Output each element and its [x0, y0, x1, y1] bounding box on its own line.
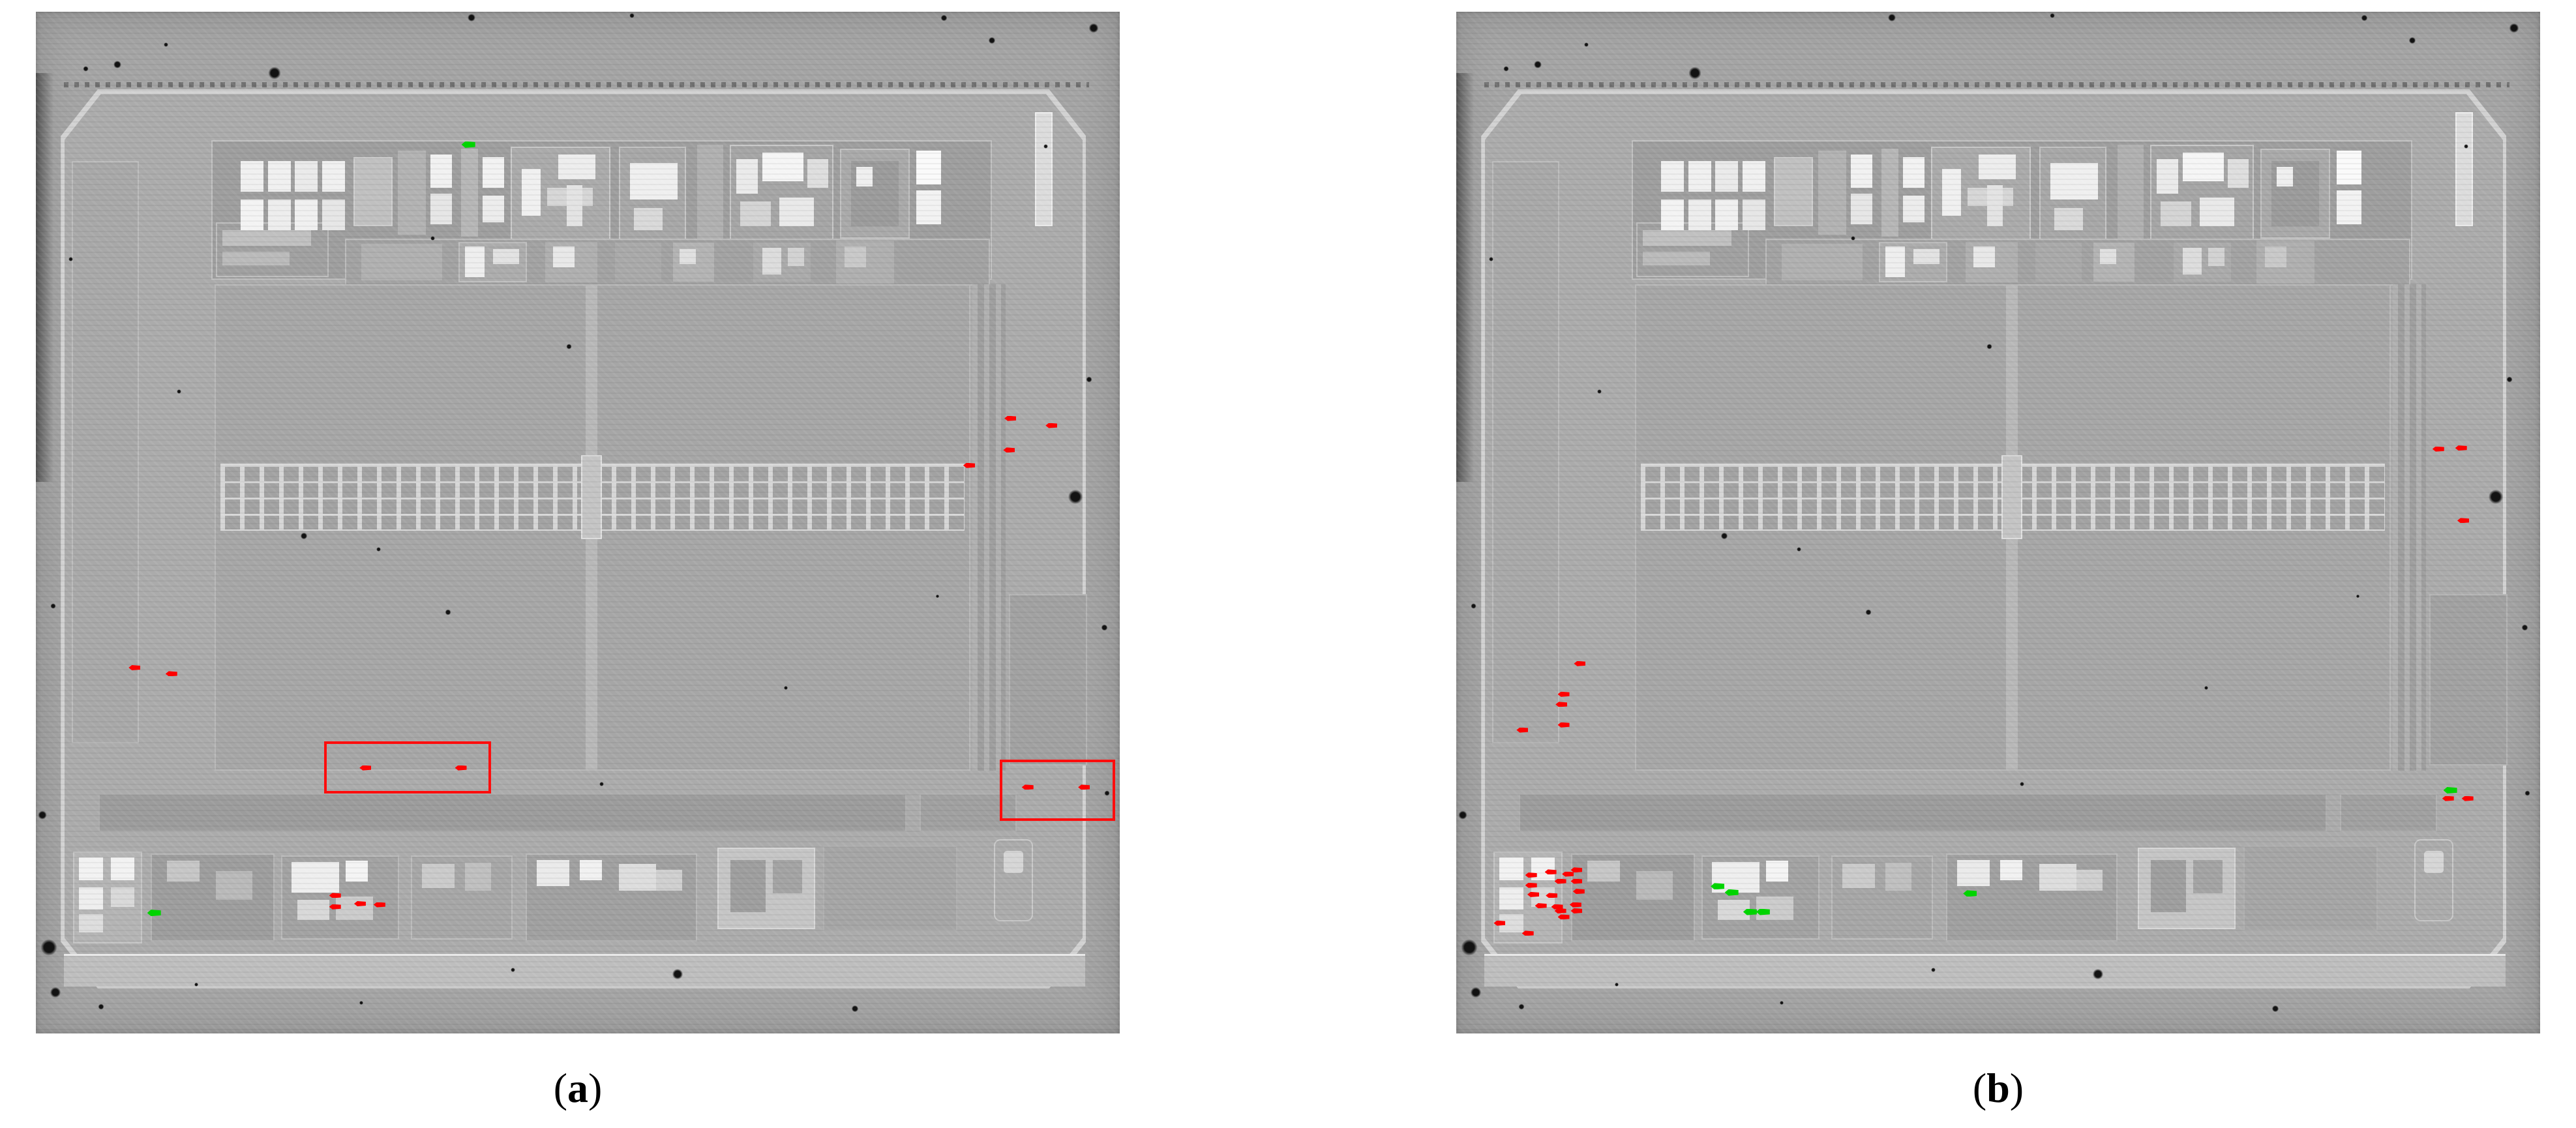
- caption-b-open-paren: (: [1973, 1065, 1986, 1111]
- die-structure-rect: [1004, 851, 1023, 873]
- dust-speck: [1087, 22, 1100, 35]
- die-structure-rect: [1484, 82, 2509, 87]
- dust-speck: [1488, 256, 1494, 262]
- die-structure-rect: [1957, 860, 1990, 887]
- die-structure-rect: [1743, 200, 1765, 230]
- dust-speck: [2271, 1004, 2280, 1013]
- die-structure-rect: [2200, 198, 2234, 226]
- die-structure-rect: [558, 155, 595, 179]
- dust-speck: [1100, 623, 1109, 632]
- dust-speck: [1085, 376, 1093, 383]
- die-structure-rect: [553, 246, 575, 267]
- die-structure-rect: [2161, 201, 2191, 226]
- dust-speck: [194, 982, 199, 987]
- die-structure-rect: [361, 244, 443, 280]
- die-structure-rect: [64, 82, 1089, 87]
- die-structure-rect: [1688, 200, 1711, 230]
- die-structure-rect: [1661, 161, 1684, 192]
- dust-speck: [444, 608, 452, 616]
- die-structure-rect: [916, 190, 941, 224]
- die-structure-rect: [537, 860, 569, 887]
- die-structure-rect: [2151, 860, 2185, 912]
- die-structure-rect: [1661, 200, 1684, 230]
- dust-speck: [1518, 1003, 1525, 1011]
- figure-two-panel: (a) (b): [0, 0, 2576, 1128]
- die-structure-rect: [241, 200, 263, 230]
- die-structure-rect: [36, 73, 53, 482]
- die-structure-rect: [1979, 155, 2016, 179]
- die-structure-rect: [656, 870, 682, 890]
- die-structure-rect: [2000, 860, 2022, 880]
- dust-speck: [1720, 531, 1729, 541]
- dust-speck: [37, 809, 48, 821]
- die-structure-rect: [1818, 151, 1846, 234]
- die-structure-rect: [779, 198, 814, 226]
- die-structure-rect: [1756, 897, 1793, 920]
- dust-speck: [1614, 982, 1619, 987]
- die-micrograph-b: [1456, 12, 2540, 1033]
- die-structure-rect: [79, 914, 103, 932]
- die-structure-rect: [740, 201, 771, 226]
- die-structure-rect: [730, 860, 765, 912]
- die-structure-rect: [1851, 155, 1872, 187]
- dust-speck: [2049, 12, 2056, 19]
- dust-speck: [50, 602, 57, 610]
- die-structure-rect: [111, 857, 135, 880]
- die-structure-rect: [2455, 112, 2473, 227]
- die-structure-rect: [762, 153, 803, 181]
- dust-speck: [2091, 967, 2105, 981]
- die-structure-rect: [634, 208, 662, 230]
- dust-speck: [2508, 22, 2521, 35]
- die-structure-rect: [2277, 167, 2293, 186]
- die-structure-rect: [222, 230, 311, 246]
- die-structure-rect: [1987, 185, 2002, 226]
- dust-speck: [1887, 12, 1897, 23]
- die-structure-rect: [2183, 248, 2202, 275]
- die-structure-rect: [1851, 194, 1872, 224]
- die-structure-rect: [398, 151, 426, 234]
- die-structure-rect: [1519, 794, 2326, 833]
- die-structure-rect: [2050, 163, 2098, 200]
- caption-a-open-paren: (: [554, 1065, 567, 1111]
- dust-speck: [2408, 36, 2417, 45]
- die-structure-rect: [1456, 73, 1474, 482]
- die-structure-rect: [98, 794, 906, 833]
- die-structure-rect: [1636, 871, 1673, 900]
- dust-speck: [1865, 608, 1872, 616]
- die-structure-rect: [2228, 159, 2249, 188]
- die-structure-rect: [615, 243, 661, 282]
- dust-speck: [359, 1000, 364, 1005]
- die-micrograph-a: [36, 12, 1120, 1033]
- dust-speck: [1583, 42, 1589, 48]
- subfigure-a: (a): [36, 12, 1120, 1128]
- caption-b-letter: b: [1986, 1065, 2010, 1111]
- dust-speck: [2524, 790, 2531, 797]
- die-structure-rect: [856, 167, 873, 186]
- die-structure-rect: [619, 864, 656, 891]
- die-structure-rect: [1009, 594, 1087, 765]
- die-structure-rect: [1688, 161, 1711, 192]
- die-structure-rect: [461, 149, 479, 237]
- die-structure-rect: [1499, 857, 1523, 880]
- die-structure-rect: [2265, 246, 2286, 267]
- die-structure-rect: [79, 887, 103, 910]
- die-structure-rect: [845, 246, 866, 267]
- die-structure-rect: [430, 155, 452, 187]
- dust-speck: [82, 65, 89, 72]
- die-structure-rect: [916, 151, 941, 185]
- die-structure-rect: [79, 857, 103, 880]
- dust-speck: [1796, 546, 1802, 552]
- defect-highlight-box: [1000, 760, 1116, 821]
- dust-speck: [1533, 59, 1543, 70]
- die-structure-rect: [241, 161, 263, 192]
- dust-speck: [629, 12, 635, 19]
- die-structure-rect: [2001, 455, 2022, 539]
- die-structure-rect: [1643, 230, 1731, 246]
- die-structure-rect: [2193, 860, 2223, 894]
- die-structure-rect: [773, 860, 802, 894]
- die-structure-rect: [1715, 161, 1738, 192]
- die-structure-rect: [465, 863, 491, 890]
- dust-speck: [376, 546, 382, 552]
- dust-speck: [97, 1003, 105, 1011]
- die-structure-rect: [581, 455, 602, 539]
- die-structure-rect: [1492, 161, 1559, 743]
- die-structure-rect: [295, 200, 318, 230]
- die-structure-rect: [1743, 161, 1765, 192]
- die-structure-rect: [72, 161, 139, 743]
- die-structure-rect: [2183, 153, 2224, 181]
- dust-speck: [850, 1004, 860, 1013]
- caption-a-close-paren: ): [588, 1065, 602, 1111]
- die-structure-rect: [630, 163, 678, 200]
- die-structure-rect: [522, 169, 541, 216]
- die-structure-rect: [1842, 864, 1875, 889]
- die-structure-rect: [422, 864, 455, 889]
- die-structure-rect: [2076, 870, 2103, 890]
- dust-speck: [299, 531, 308, 541]
- die-structure-rect: [1903, 196, 1925, 222]
- dust-speck: [1470, 602, 1477, 610]
- die-structure-rect: [823, 846, 957, 932]
- die-structure-rect: [216, 871, 253, 900]
- die-structure-rect: [2243, 846, 2378, 932]
- die-structure-rect: [493, 249, 519, 265]
- die-structure-rect: [788, 248, 804, 266]
- caption-b-close-paren: ): [2010, 1065, 2024, 1111]
- dust-speck: [1503, 65, 1510, 72]
- die-structure-rect: [2393, 284, 2427, 771]
- die-structure-rect: [2208, 248, 2224, 266]
- die-structure-rect: [1942, 169, 1962, 216]
- die-structure-rect: [111, 887, 135, 907]
- die-structure-rect: [567, 185, 582, 226]
- dust-speck: [2360, 14, 2369, 22]
- dust-speck: [466, 12, 477, 23]
- die-structure-rect: [2337, 190, 2361, 224]
- dust-speck: [38, 936, 60, 958]
- die-structure-rect: [64, 954, 1085, 987]
- die-structure-rect: [2039, 864, 2076, 891]
- die-structure-rect: [1484, 954, 2506, 987]
- die-structure-rect: [2035, 243, 2082, 282]
- dust-speck: [2506, 376, 2513, 383]
- die-structure-rect: [1913, 249, 1939, 265]
- die-structure-rect: [1035, 112, 1053, 227]
- dust-speck: [1458, 936, 1480, 958]
- die-structure-rect: [430, 194, 452, 224]
- dust-speck: [940, 14, 948, 22]
- die-structure-rect: [483, 196, 504, 222]
- dust-speck: [2521, 623, 2529, 632]
- dust-speck: [1779, 1000, 1784, 1005]
- dust-speck: [68, 256, 74, 262]
- die-structure-rect: [736, 159, 758, 194]
- dust-speck: [1457, 809, 1469, 821]
- die-structure-rect: [1766, 861, 1788, 881]
- dust-speck: [48, 985, 63, 1000]
- dust-speck: [163, 42, 169, 48]
- die-structure-rect: [292, 862, 339, 893]
- die-structure-rect: [2118, 145, 2144, 241]
- die-structure-rect: [762, 248, 782, 275]
- die-structure-rect: [2054, 208, 2082, 230]
- die-structure-rect: [483, 157, 504, 188]
- die-structure-rect: [1885, 246, 1905, 277]
- die-structure-rect: [1973, 246, 1995, 267]
- dust-speck: [2486, 487, 2506, 507]
- die-structure-rect: [465, 246, 485, 277]
- dust-speck: [987, 36, 996, 45]
- dust-speck: [1066, 487, 1085, 507]
- die-structure-rect: [1881, 149, 1899, 237]
- die-structure-rect: [268, 200, 291, 230]
- die-structure-rect: [1643, 252, 1710, 265]
- die-structure-rect: [322, 161, 345, 192]
- die-structure-rect: [1715, 200, 1738, 230]
- die-structure-rect: [353, 157, 393, 227]
- die-structure-rect: [167, 861, 200, 881]
- die-structure-rect: [2424, 851, 2444, 873]
- die-structure-rect: [1885, 863, 1911, 890]
- die-structure-rect: [222, 252, 290, 265]
- die-structure-rect: [972, 284, 1006, 771]
- die-structure-rect: [807, 159, 828, 188]
- die-structure-rect: [580, 860, 601, 880]
- die-structure-rect: [1903, 157, 1925, 188]
- dust-speck: [670, 967, 685, 981]
- subfigure-b-caption: (b): [1456, 1052, 2540, 1124]
- die-structure-rect: [295, 161, 318, 192]
- die-structure-rect: [2100, 249, 2116, 265]
- dust-speck: [1469, 985, 1483, 1000]
- dust-speck: [266, 65, 283, 82]
- die-structure-rect: [2429, 594, 2508, 765]
- die-structure-rect: [336, 897, 373, 920]
- die-structure-rect: [680, 249, 696, 265]
- die-structure-rect: [268, 161, 291, 192]
- caption-a-letter: a: [567, 1065, 588, 1111]
- die-structure-rect: [1499, 887, 1523, 910]
- die-structure-rect: [2340, 794, 2438, 833]
- die-structure-rect: [2337, 151, 2361, 185]
- die-structure-rect: [297, 900, 330, 920]
- die-structure-rect: [1774, 157, 1813, 227]
- dust-speck: [1686, 65, 1703, 82]
- dust-speck: [112, 59, 123, 70]
- die-structure-rect: [1587, 861, 1620, 881]
- die-structure-rect: [697, 145, 723, 241]
- die-structure-rect: [1782, 244, 1863, 280]
- die-structure-rect: [2157, 159, 2178, 194]
- die-structure-rect: [1718, 900, 1750, 920]
- subfigure-a-caption: (a): [36, 1052, 1120, 1124]
- subfigure-b: (b): [1456, 12, 2540, 1128]
- die-structure-rect: [322, 200, 345, 230]
- die-structure-rect: [346, 861, 367, 881]
